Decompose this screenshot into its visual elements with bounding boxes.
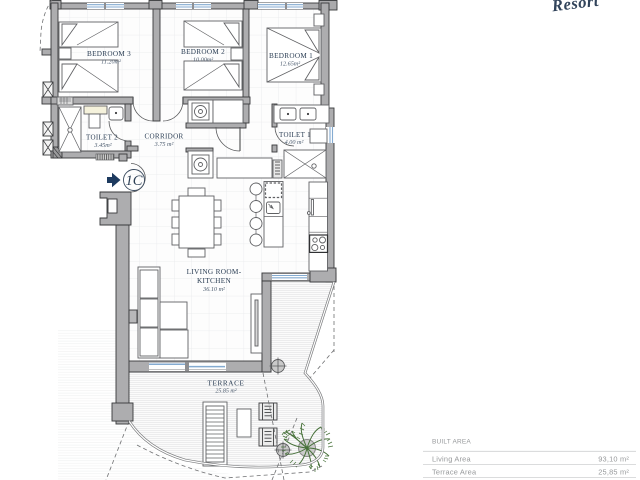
- svg-text:CORRIDOR: CORRIDOR: [144, 133, 183, 141]
- svg-text:3.75 m²: 3.75 m²: [154, 141, 174, 148]
- svg-text:Living Area: Living Area: [432, 455, 471, 464]
- svg-text:BEDROOM 2: BEDROOM 2: [181, 48, 225, 56]
- svg-text:36.10 m²: 36.10 m²: [202, 286, 225, 293]
- svg-text:11.20m²: 11.20m²: [101, 59, 121, 66]
- svg-text:25,85 m²: 25,85 m²: [598, 468, 629, 477]
- svg-text:4.00 m²: 4.00 m²: [285, 139, 304, 146]
- svg-text:3.45m²: 3.45m²: [93, 142, 111, 149]
- svg-text:93,10 m²: 93,10 m²: [598, 455, 629, 464]
- svg-text:1C: 1C: [126, 173, 143, 189]
- svg-text:KITCHEN: KITCHEN: [197, 276, 232, 285]
- svg-text:25.85 m²: 25.85 m²: [215, 389, 236, 395]
- svg-text:BEDROOM 3: BEDROOM 3: [87, 50, 131, 58]
- svg-text:10.00m²: 10.00m²: [193, 57, 213, 64]
- svg-text:Terrace Area: Terrace Area: [432, 468, 477, 477]
- svg-text:TOILET 1: TOILET 1: [279, 131, 311, 139]
- svg-text:12.65m²: 12.65m²: [280, 61, 300, 68]
- svg-text:LIVING ROOM-: LIVING ROOM-: [187, 267, 242, 276]
- svg-text:TOILET 2: TOILET 2: [86, 134, 118, 142]
- svg-text:TERRACE: TERRACE: [208, 380, 245, 388]
- svg-text:BEDROOM 1: BEDROOM 1: [269, 52, 313, 60]
- svg-text:BUILT AREA: BUILT AREA: [432, 439, 471, 446]
